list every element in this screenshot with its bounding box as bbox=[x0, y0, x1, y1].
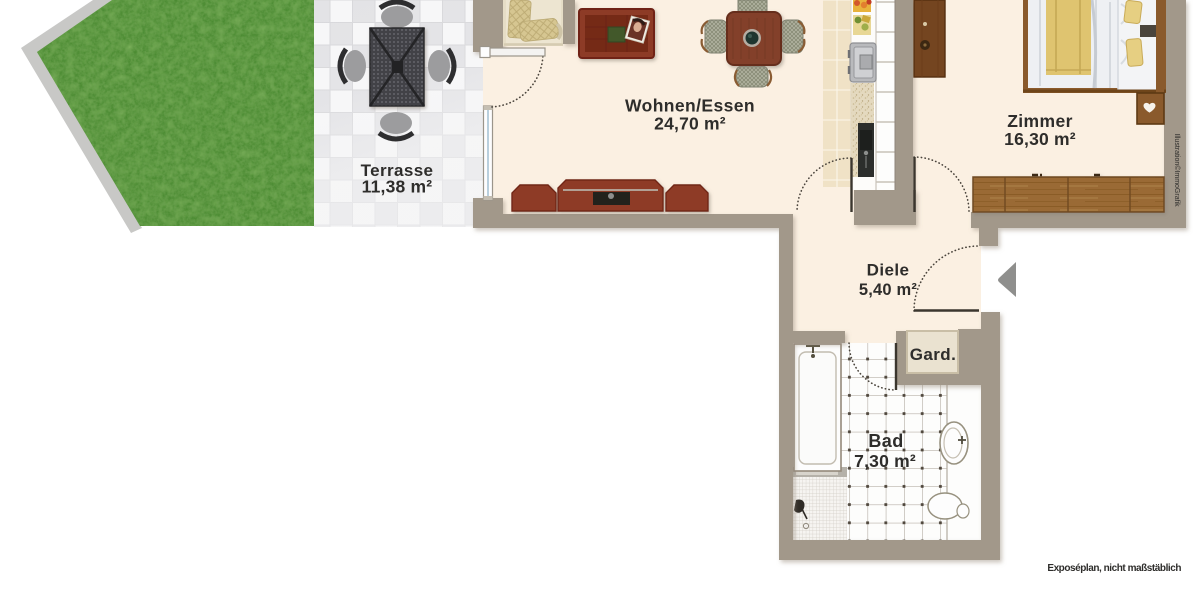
svg-text:11,38 m²: 11,38 m² bbox=[362, 177, 433, 197]
svg-text:Zimmer: Zimmer bbox=[1007, 111, 1073, 131]
svg-text:5,40 m²: 5,40 m² bbox=[859, 281, 918, 299]
svg-text:7,30 m²: 7,30 m² bbox=[854, 451, 916, 471]
svg-text:Diele: Diele bbox=[867, 261, 910, 280]
svg-text:24,70 m²: 24,70 m² bbox=[654, 114, 726, 134]
svg-text:Gard.: Gard. bbox=[910, 345, 956, 364]
svg-text:Wohnen/Essen: Wohnen/Essen bbox=[625, 96, 755, 116]
svg-text:Illustration©ImmoGrafik: Illustration©ImmoGrafik bbox=[1173, 133, 1181, 207]
svg-text:Exposéplan, nicht maßstäblich: Exposéplan, nicht maßstäblich bbox=[1047, 563, 1181, 574]
svg-text:16,30 m²: 16,30 m² bbox=[1004, 129, 1076, 149]
svg-text:Bad: Bad bbox=[868, 431, 903, 451]
